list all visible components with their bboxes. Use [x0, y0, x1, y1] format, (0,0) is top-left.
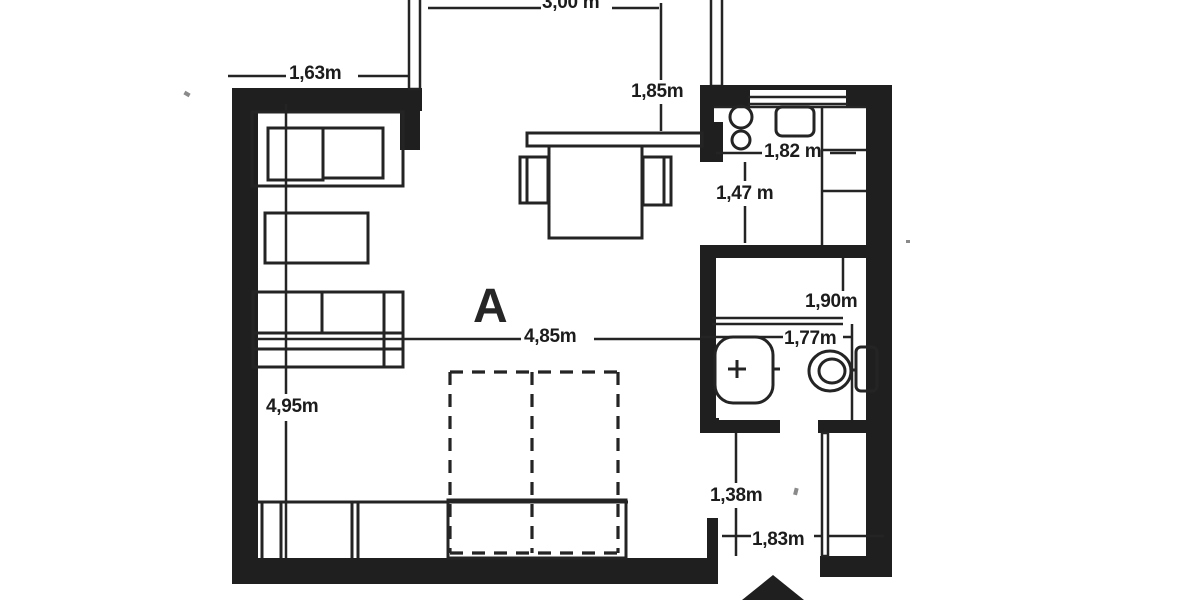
wall-bath-bottom-left [702, 420, 780, 433]
floor-plan: 3,00 m 1,63m 1,85m 1,82 m 1,47 m 1,90m 1… [0, 0, 1200, 600]
sofa-top-cushion-1 [268, 128, 323, 180]
dimension-label-upper-left-wall: 1,63m [289, 64, 341, 83]
wall-bottom-stub [707, 518, 718, 560]
toilet-bowl-inner [819, 359, 845, 383]
chair-left [520, 157, 548, 203]
wall-right [866, 85, 892, 577]
plan-drawing [0, 0, 1200, 600]
dining-set [520, 133, 702, 238]
dimension-label-kitchen-passage: 1,47 m [716, 184, 773, 203]
dining-table [549, 146, 642, 238]
noise-speck-2 [793, 488, 799, 496]
dimension-label-dining-depth: 1,85m [631, 82, 683, 101]
sofa-top-outline [252, 112, 403, 186]
wardrobe-left-edge [822, 433, 828, 556]
side-table [265, 213, 368, 263]
wall-bath-left [700, 245, 716, 433]
wall-top-left [232, 88, 422, 111]
wardrobe-bottom [820, 556, 868, 577]
stove-burner-top-icon [730, 106, 752, 128]
sideboard [527, 133, 702, 146]
sofa-top-cushion-2 [323, 128, 383, 178]
kitchen-window-head [748, 85, 848, 90]
wall-bath-top [700, 245, 892, 258]
sofa-middle-outline [253, 292, 403, 367]
kitchen-sink-icon [776, 107, 814, 136]
wall-bottom [232, 558, 718, 584]
dimension-label-living-width: 4,85m [524, 327, 576, 346]
hallway-elements [742, 433, 828, 600]
dimension-label-bath-upper: 1,90m [805, 292, 857, 311]
noise-speck-1 [183, 91, 190, 97]
dimension-label-bath-lower: 1,77m [784, 329, 836, 348]
dimension-label-hall-width: 1,83m [752, 530, 804, 549]
balcony-jamb-left [409, 0, 420, 89]
dimension-label-living-depth: 4,95m [266, 397, 318, 416]
stove-burner-bottom-icon [732, 131, 750, 149]
chair-right [643, 157, 671, 205]
noise-speck-3 [906, 240, 910, 243]
kitchen-fixtures [714, 106, 866, 245]
dimension-label-hall-depth: 1,38m [710, 486, 762, 505]
balcony-jamb-right [711, 0, 722, 86]
dimension-label-kitchen-width: 1,82 m [764, 142, 821, 161]
entrance-arrow-icon [742, 575, 804, 600]
bench-right-module [448, 500, 626, 558]
bed-dashed-outline [450, 372, 618, 553]
dimension-label-balcony-width: 3,00 m [542, 0, 599, 12]
room-label: A [473, 283, 508, 331]
